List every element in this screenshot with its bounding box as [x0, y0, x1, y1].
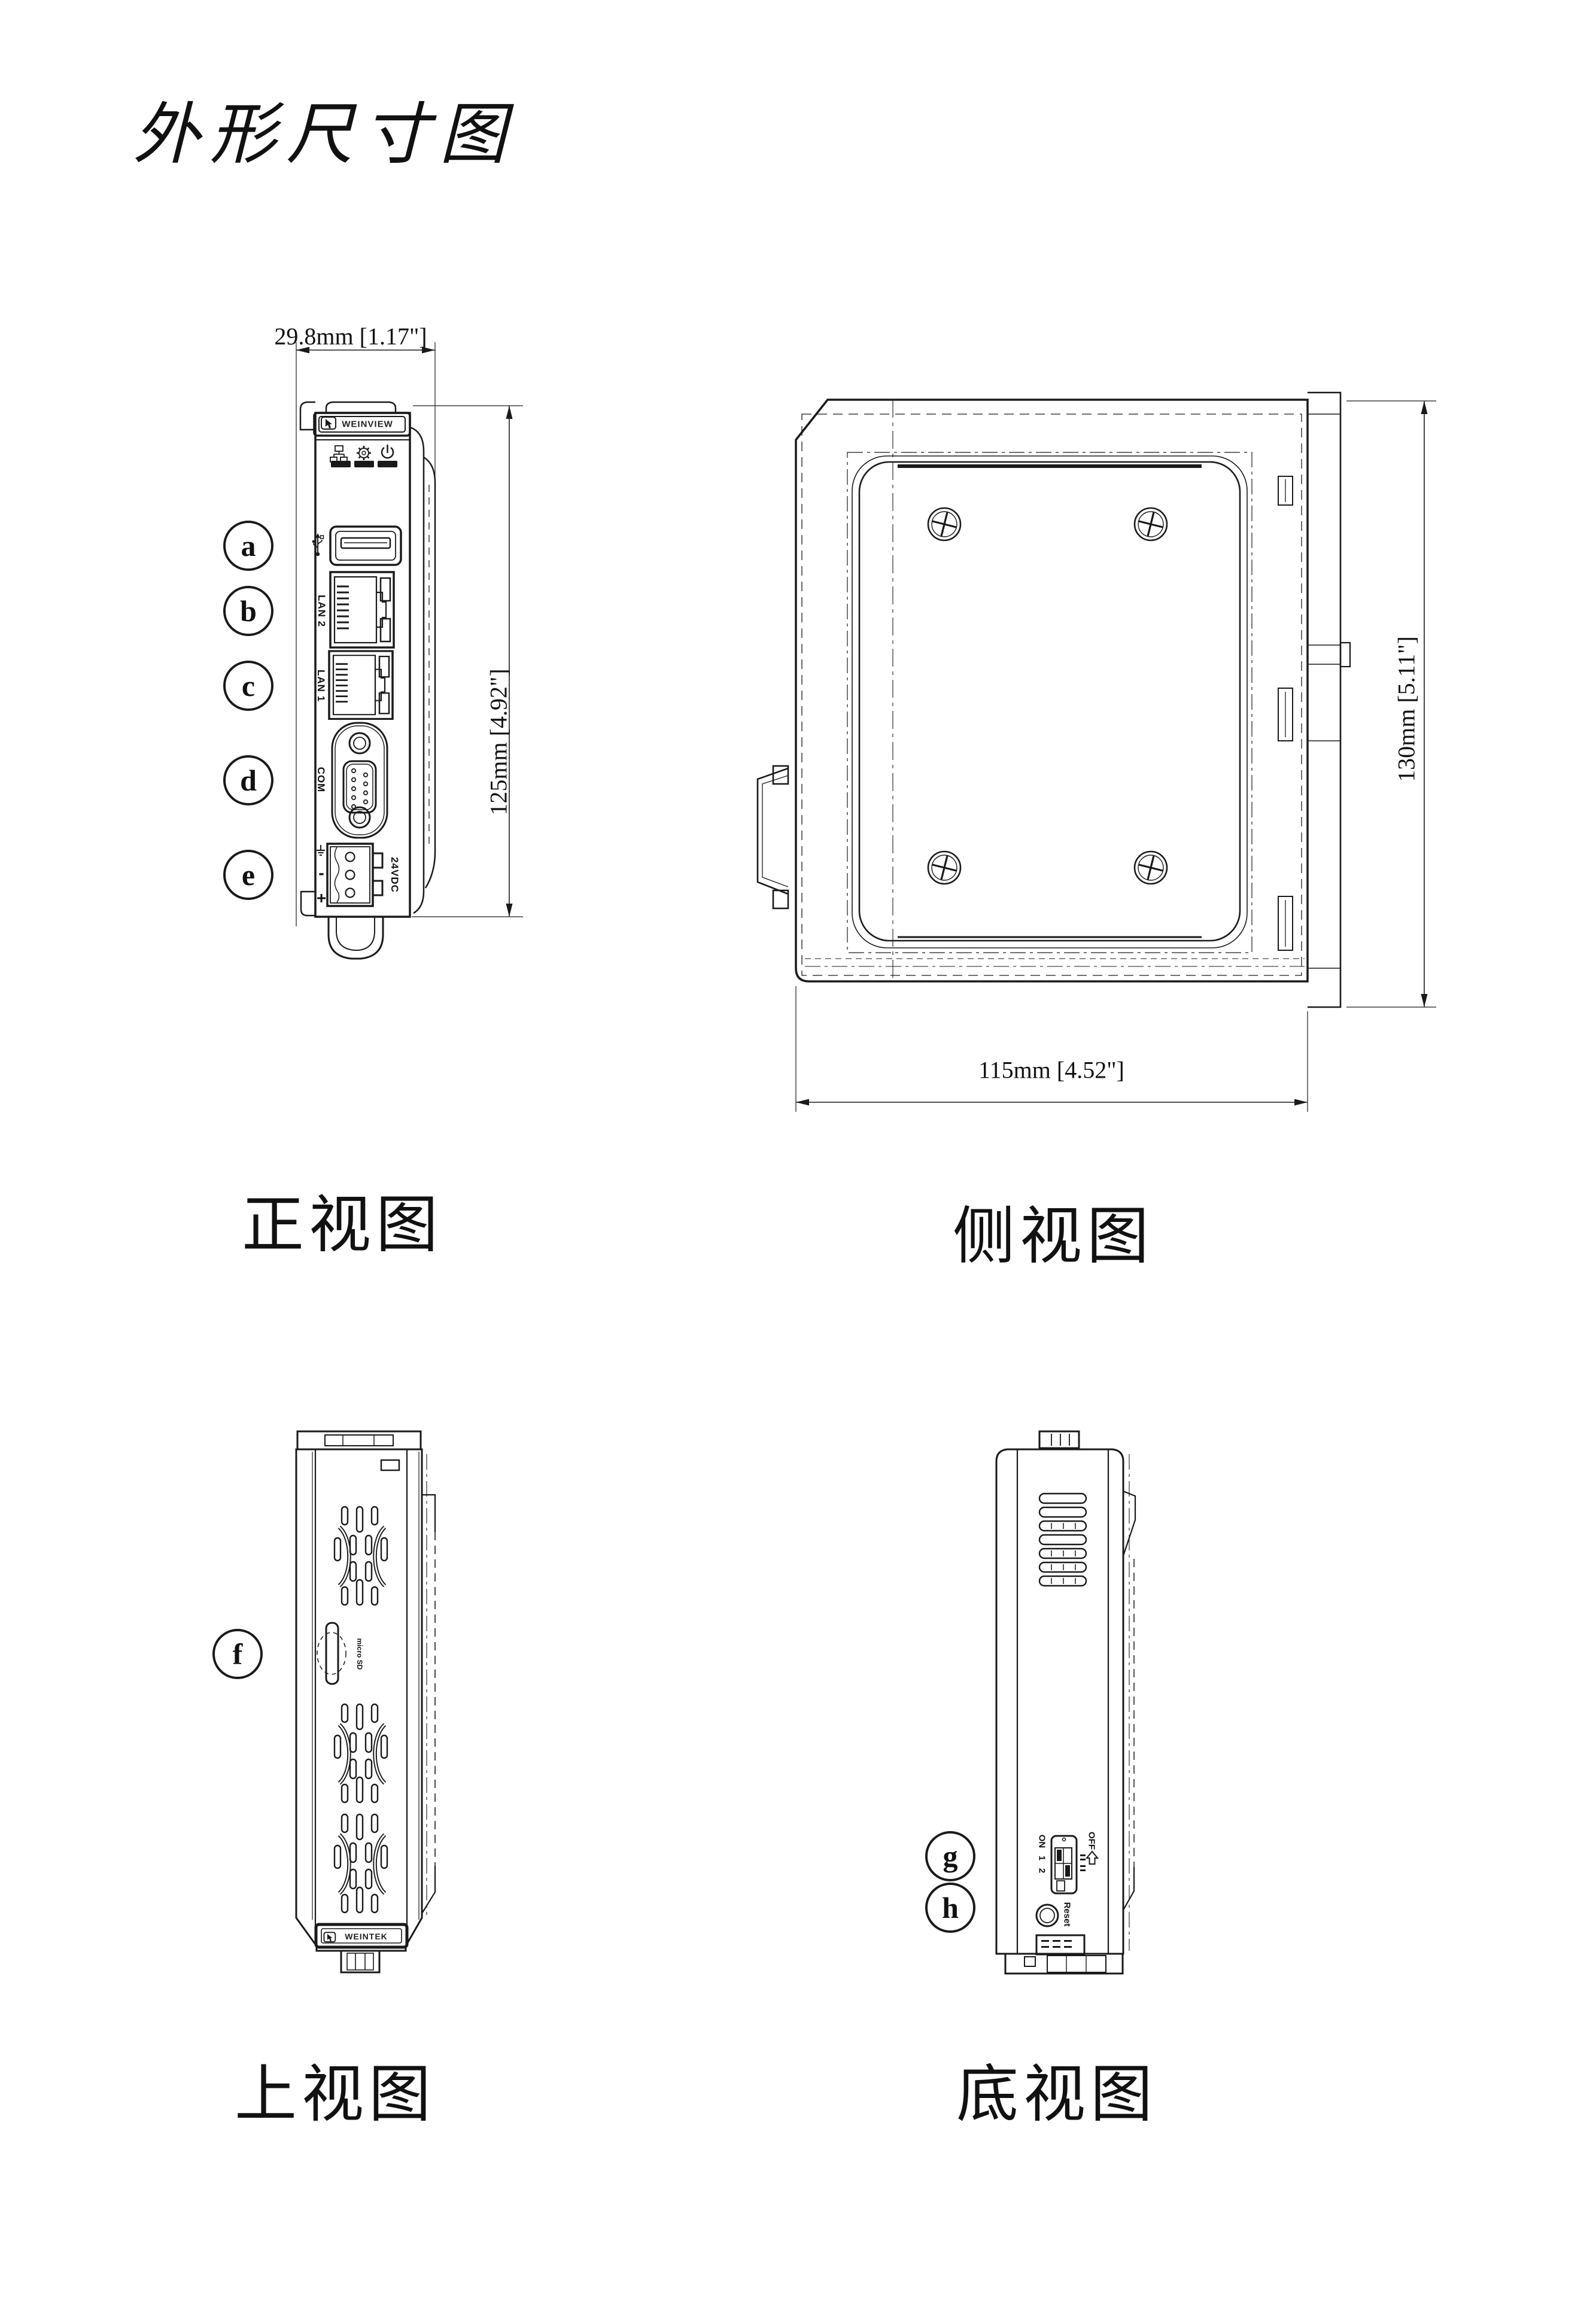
lan2-label: LAN 2 — [315, 595, 327, 627]
side-width-dim-text: 115mm [4.52"] — [978, 1056, 1124, 1084]
mounting-screws — [928, 508, 1167, 884]
micro-sd-label: micro SD — [355, 1638, 364, 1670]
callout-b-lan2: b — [223, 586, 273, 636]
top-din-bracket-hidden — [422, 1454, 435, 1915]
callout-f-sd: f — [212, 1629, 263, 1679]
lan1-label: LAN 1 — [315, 670, 327, 702]
usb-port — [312, 527, 401, 565]
bottom-din-lug — [1036, 1935, 1084, 1954]
com-label: COM — [315, 767, 327, 793]
callout-h-reset: h — [925, 1883, 975, 1933]
brand-logo-front: WEINVIEW — [342, 419, 393, 430]
brand-logo-top: WEINTEK — [345, 1932, 388, 1941]
side-vent-slots — [1278, 476, 1293, 950]
dimension-drawing-page: 外形尺寸图 29.8mm [1.17"] 125mm [4.92"] WEINV… — [0, 0, 1596, 2320]
dip-2-label: 2 — [1037, 1868, 1047, 1873]
lan2-port — [330, 572, 394, 647]
power-terminal — [327, 844, 382, 906]
callout-a-usb: a — [223, 521, 273, 571]
ground-icon — [317, 845, 325, 855]
top-device-outline — [296, 1431, 422, 1951]
side-height-dim-text: 130mm [5.11"] — [1393, 636, 1421, 782]
side-db9-protrusion — [758, 766, 788, 908]
top-view-caption: 上视图 — [235, 2044, 436, 2134]
front-height-dim-text: 125mm [4.92"] — [485, 668, 513, 815]
hand-logo-icon-small — [323, 1931, 340, 1944]
side-view-drawing — [742, 359, 1466, 1137]
led-indicators — [330, 445, 397, 467]
led-bar-status — [354, 461, 374, 467]
front-view-caption: 正视图 — [242, 1174, 443, 1264]
gear-icon — [357, 446, 371, 460]
top-bottom-connector — [341, 1951, 379, 1972]
led-bar-network — [331, 461, 351, 467]
led-bar-power — [378, 461, 397, 467]
side-height-dimension — [1346, 401, 1436, 1007]
top-vent-cluster-3 — [335, 1814, 387, 1912]
lan1-port — [329, 651, 393, 719]
callout-c-lan1: c — [223, 661, 273, 711]
side-width-dimension — [796, 986, 1308, 1112]
front-width-dim-text: 29.8mm [1.17"] — [274, 323, 427, 351]
reset-label: Reset — [1062, 1902, 1072, 1927]
minus-label: - — [318, 863, 324, 883]
bottom-device-outline — [996, 1431, 1123, 1954]
bottom-view-caption: 底视图 — [956, 2044, 1157, 2134]
front-height-dimension — [412, 406, 523, 917]
top-vent-cluster-2 — [335, 1704, 387, 1802]
power-label: 24VDC — [388, 857, 400, 893]
dip-1-label: 1 — [1037, 1856, 1047, 1860]
dip-off-label: OFF — [1087, 1832, 1097, 1850]
reset-button — [1036, 1905, 1058, 1926]
top-view-drawing — [269, 1418, 467, 1993]
front-view-drawing — [263, 317, 551, 999]
off-direction-arrow-icon — [1087, 1851, 1098, 1864]
bottom-vent-grille — [1039, 1494, 1086, 1586]
bottom-view-drawing — [975, 1418, 1173, 1993]
network-icon — [330, 446, 347, 462]
callout-e-power: e — [223, 850, 273, 900]
top-vent-cluster-1 — [335, 1507, 387, 1605]
callout-d-com: d — [223, 755, 273, 805]
callout-g-dip: g — [925, 1831, 975, 1881]
com-port — [332, 723, 387, 838]
power-icon — [382, 445, 393, 458]
sd-card-slot — [317, 1623, 346, 1684]
dip-on-label: ON — [1037, 1835, 1047, 1848]
din-rail-bracket — [1308, 393, 1350, 1007]
page-title: 外形尺寸图 — [133, 80, 516, 177]
bottom-end-cap — [1005, 1954, 1123, 1974]
usb-icon — [312, 533, 324, 556]
side-view-caption: 侧视图 — [953, 1185, 1154, 1276]
bottom-din-bracket-hidden — [1123, 1454, 1135, 1951]
side-device-outline — [796, 400, 1308, 981]
plus-label: + — [317, 889, 326, 908]
hand-logo-icon — [321, 415, 341, 432]
